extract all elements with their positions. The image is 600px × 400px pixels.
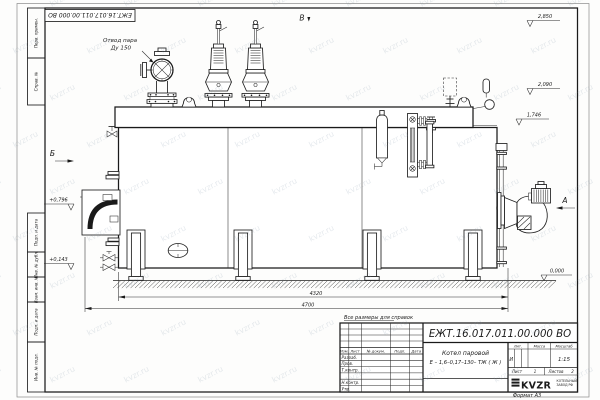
scale-label: Масштаб: [555, 344, 573, 348]
support-leg: [363, 230, 381, 280]
margin-block-label: Инв. № подл.: [34, 353, 39, 381]
ground-hatch: [113, 281, 556, 288]
row-label: Разраб.: [342, 355, 358, 360]
callout-line1: Отвод пара: [103, 38, 138, 44]
elevation-value: +0,796: [49, 198, 68, 204]
support-leg: [127, 230, 145, 280]
elevation-value: 2,850: [538, 14, 552, 20]
elevation-value: 2,090: [538, 82, 552, 88]
col-date: Дата: [410, 349, 421, 353]
dimension-value: 4320: [310, 291, 323, 297]
margin-column: Перв. примен. Справ. № Подп. и дата Инв.…: [28, 8, 46, 392]
product-name-line1: Котел паровой: [442, 350, 489, 357]
mass-label: Масса: [534, 344, 545, 348]
col-list: Лист: [349, 349, 360, 353]
sheets-value: 2: [571, 369, 574, 374]
elevation-value: +0,143: [49, 257, 68, 263]
elevation-value: 1,746: [527, 113, 541, 119]
sensor-capsule: [483, 79, 490, 93]
elevation-0143: +0,143: [44, 257, 74, 269]
margin-block-label: Подп. и дата: [34, 218, 39, 246]
company-name-line2: ЗАВОД РФ: [557, 383, 574, 387]
elevation-1746: 1,746: [516, 113, 549, 126]
col-sign: Подп.: [394, 349, 405, 353]
steam-outlet-callout: Отвод пара Ду 150: [103, 38, 154, 63]
margin-block-label: Взам. инв. №: [34, 276, 39, 303]
scale-value: 1:15: [558, 357, 571, 363]
sheet-label: Лист: [511, 369, 523, 374]
dimension-value: 4700: [302, 302, 315, 308]
safety-valve: [242, 21, 269, 108]
view-marker-v: В: [299, 14, 310, 23]
row-label: Т.контр.: [342, 367, 359, 372]
boiler-technical-drawing: Перв. примен. Справ. № Подп. и дата Инв.…: [0, 0, 600, 400]
rear-burner-fan: [498, 182, 551, 233]
elevation-0796: +0,796: [44, 198, 74, 210]
view-letter: А: [561, 196, 567, 205]
lifting-lug: [182, 97, 196, 107]
support-leg: [464, 230, 482, 280]
logo-text: KVZR: [521, 380, 552, 391]
row-label: Н.контр.: [342, 380, 360, 385]
safety-valve: [205, 21, 232, 108]
corner-stamp: ЕЖТ.16.017.011.00.000 ВО: [45, 10, 135, 22]
steam-outlet-valve: [141, 48, 177, 107]
view-marker-b: Б: [50, 149, 74, 163]
row-label: Утв.: [342, 386, 350, 391]
front-drain-valves: [100, 252, 119, 271]
margin-block-label: Перв. примен.: [34, 18, 39, 48]
margin-block-label: Подп. и дата: [34, 308, 39, 336]
view-marker-a: А: [556, 196, 575, 210]
elevation-2090: 2,090: [527, 82, 560, 95]
front-burner-box: [82, 172, 120, 246]
product-name-line2: Е – 1,6–0,17–130– ТЖ ( Ж ): [430, 360, 502, 366]
lit-value: И: [509, 357, 513, 363]
col-izm: Изм.: [340, 349, 349, 353]
elevation-0000: 0,000: [541, 269, 572, 281]
view-letter: В: [299, 14, 304, 23]
sheet-value: 1: [534, 369, 537, 374]
boiler-assembly: [115, 107, 497, 268]
support-leg: [234, 230, 252, 280]
row-label: Пров.: [342, 361, 354, 366]
elevation-value: 0,000: [550, 269, 564, 275]
elevation-2850: 2,850: [527, 14, 560, 27]
margin-block-label: Инв. № дубл.: [34, 251, 39, 278]
callout-line2: Ду 150: [110, 46, 132, 52]
corner-stamp-number: ЕЖТ.16.017.011.00.000 ВО: [48, 11, 132, 18]
margin-block-label: Справ. №: [34, 72, 39, 91]
doc-number: ЕЖТ.16.017.011.00.000 ВО: [429, 329, 571, 340]
ground-line: [113, 281, 556, 289]
drawing-sheet: Перв. примен. Справ. № Подп. и дата Инв.…: [0, 0, 600, 400]
lit-label: Лит.: [513, 344, 522, 348]
reference-note: Все размеры для справок: [344, 315, 414, 321]
lifting-lug: [457, 97, 471, 107]
note-text: Все размеры для справок: [344, 315, 414, 321]
view-letter: Б: [50, 149, 55, 158]
sheets-label: Листов: [548, 369, 565, 374]
col-doc: № докум.: [366, 349, 385, 353]
format-label: Формат А3: [513, 393, 541, 399]
title-block: Изм. Лист № докум. Подп. Дата Разраб. Пр…: [340, 323, 578, 399]
manhole: [168, 244, 188, 258]
